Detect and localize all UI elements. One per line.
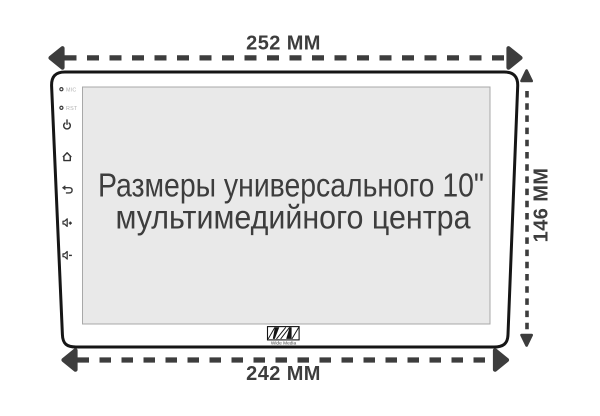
svg-text:252 ММ: 252 ММ [246, 32, 321, 54]
svg-text:RST: RST [66, 106, 78, 112]
svg-text:146 ММ: 146 ММ [531, 168, 553, 243]
svg-text:242 ММ: 242 ММ [246, 363, 321, 385]
svg-text:MIC: MIC [66, 87, 76, 93]
svg-text:Wide Media: Wide Media [271, 341, 297, 347]
svg-text:мультимедийного центра: мультимедийного центра [116, 199, 472, 236]
